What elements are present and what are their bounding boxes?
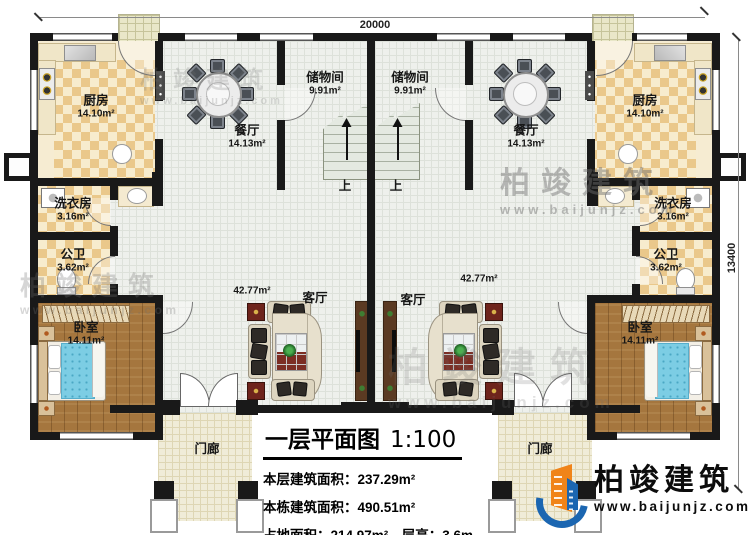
wall (38, 232, 110, 240)
drawing-scale: 1:100 (390, 427, 456, 453)
brand-logo-icon (536, 464, 584, 522)
porch-column (492, 481, 512, 499)
building-area-line: 本栋建筑面积：490.51m² (263, 496, 473, 516)
stove-icon (39, 68, 55, 100)
pillow-icon (689, 371, 702, 395)
dimension-width-label: 20000 (345, 19, 405, 31)
window (30, 70, 38, 130)
porch-column (158, 400, 180, 415)
nightstand-icon (38, 401, 55, 416)
room-label-bath-left: 公卫3.62m² (57, 249, 89, 274)
headboard (38, 341, 48, 401)
wall (152, 172, 163, 206)
kitchen-sink (654, 45, 686, 61)
room-label-living-left-area: 42.77m² (233, 286, 270, 297)
floor-area-line: 本层建筑面积：237.29m² (263, 468, 473, 488)
title-block: 一层平面图1:100 本层建筑面积：237.29m² 本栋建筑面积：490.51… (263, 420, 473, 535)
sheet-fold (92, 343, 104, 397)
kitchen-basin-round (112, 144, 132, 164)
room-label-porch-right: 门廊 (527, 443, 552, 457)
pillow-icon (689, 345, 702, 369)
wall (110, 226, 118, 256)
window (437, 33, 490, 41)
wall (258, 405, 341, 413)
room-label-dining-right: 餐厅14.13m² (507, 125, 544, 150)
wall (592, 405, 640, 413)
wall (409, 405, 492, 413)
wall (565, 33, 592, 41)
room-label-storage-right: 储物间9.91m² (391, 72, 429, 97)
footprint-line: 占地面积：214.97m² 层高：3.6m (263, 524, 473, 535)
stairs-up-label-left: 上 (339, 180, 352, 194)
tv-icon (356, 330, 360, 372)
wall (587, 295, 720, 303)
dimension-height-label: 13400 (726, 228, 738, 288)
room-label-living-right: 客厅 (400, 294, 425, 308)
porch-column (570, 400, 592, 415)
dining-table-inner (513, 82, 537, 106)
fridge-icon (156, 71, 165, 100)
room-label-porch-left: 门廊 (194, 443, 219, 457)
wall (465, 120, 473, 190)
wall (465, 41, 473, 85)
brand-url: www.baijunjz.com (594, 499, 750, 514)
dining-set-left (185, 61, 249, 125)
room-label-laundry-left: 洗衣房3.16m² (54, 198, 92, 223)
stove-icon (695, 68, 711, 100)
wall (112, 33, 118, 41)
window (637, 33, 687, 41)
wall (158, 33, 185, 41)
window (712, 70, 720, 130)
wall (632, 186, 640, 200)
party-wall (367, 33, 375, 413)
wash-basin-oval-icon (605, 188, 625, 204)
brand-logo: 柏竣建筑 www.baijunjz.com (536, 464, 750, 522)
wall (640, 232, 712, 240)
toilet-icon (676, 287, 695, 295)
wall (277, 120, 285, 190)
wall (595, 178, 712, 186)
room-label-bedroom-right: 卧室14.11m² (622, 322, 659, 347)
room-label-living-right-area: 42.77m² (460, 274, 497, 285)
nightstand-icon (38, 326, 55, 341)
dimension-tick (700, 6, 709, 15)
wall (110, 405, 158, 413)
wall (712, 130, 720, 345)
kitchen-sink (64, 45, 96, 61)
plant-icon (454, 344, 467, 357)
window (30, 345, 38, 403)
wash-basin-oval-icon (127, 188, 147, 204)
wall (277, 41, 285, 85)
side-table-icon (247, 303, 265, 321)
pillow-icon (48, 371, 61, 395)
dining-table-inner (206, 82, 230, 106)
sofa-set-left (247, 301, 321, 400)
side-table-icon (485, 303, 503, 321)
column-base (150, 499, 178, 533)
dimension-line-top (38, 17, 705, 18)
porch-column (492, 400, 514, 415)
wall (30, 33, 38, 70)
wall (341, 402, 409, 413)
wall (30, 130, 38, 345)
wall (712, 33, 720, 70)
side-table-icon (247, 382, 265, 400)
drawing-title: 一层平面图 (265, 426, 380, 452)
wall (30, 295, 163, 303)
room-label-kitchen-left: 厨房14.10m² (77, 95, 114, 120)
side-table-icon (485, 382, 503, 400)
entry-terrace-right (592, 14, 634, 44)
porch-column (154, 481, 174, 499)
plant-icon (283, 344, 296, 357)
wall (313, 33, 437, 41)
room-label-bedroom-left: 卧室14.11m² (68, 322, 105, 347)
nightstand-icon (695, 401, 712, 416)
tv-cabinet-right (383, 301, 397, 401)
window (712, 345, 720, 403)
brand-name: 柏竣建筑 (594, 464, 750, 497)
kitchen-basin-round (618, 144, 638, 164)
window (617, 432, 690, 440)
floor-plan-canvas: 20000 13400 (0, 0, 750, 535)
dimension-line-right (738, 38, 739, 490)
window (53, 33, 112, 41)
window (60, 432, 133, 440)
porch-column (238, 481, 258, 499)
wall (490, 33, 513, 41)
column-base (488, 499, 516, 533)
tv-icon (392, 330, 396, 372)
porch-column (236, 400, 258, 415)
room-label-laundry-right: 洗衣房3.16m² (654, 198, 692, 223)
nightstand-icon (695, 326, 712, 341)
fridge-icon (585, 71, 594, 100)
room-label-kitchen-right: 厨房14.10m² (626, 95, 663, 120)
entry-terrace-left (118, 14, 160, 44)
toilet-icon (57, 287, 76, 295)
window (185, 33, 237, 41)
stairs-up-label-right: 上 (390, 180, 403, 194)
pillow-icon (48, 345, 61, 369)
room-label-dining-left: 餐厅14.13m² (228, 125, 265, 150)
room-label-bath-right: 公卫3.62m² (650, 249, 682, 274)
room-label-storage-left: 储物间9.91m² (306, 72, 344, 97)
headboard (702, 341, 712, 401)
dimension-tick (732, 32, 741, 41)
wall (237, 33, 260, 41)
quilt (61, 343, 95, 399)
wall (38, 178, 155, 186)
sofa-set-right (429, 301, 503, 400)
wall (587, 172, 598, 206)
window (260, 33, 313, 41)
wall (632, 226, 640, 256)
dining-set-right (492, 61, 556, 125)
room-label-living-left: 客厅 (302, 292, 327, 306)
side-box (716, 153, 746, 181)
sheet-fold (646, 343, 658, 397)
column-base (236, 499, 264, 533)
wall (110, 186, 118, 200)
window (513, 33, 565, 41)
quilt (655, 343, 689, 399)
